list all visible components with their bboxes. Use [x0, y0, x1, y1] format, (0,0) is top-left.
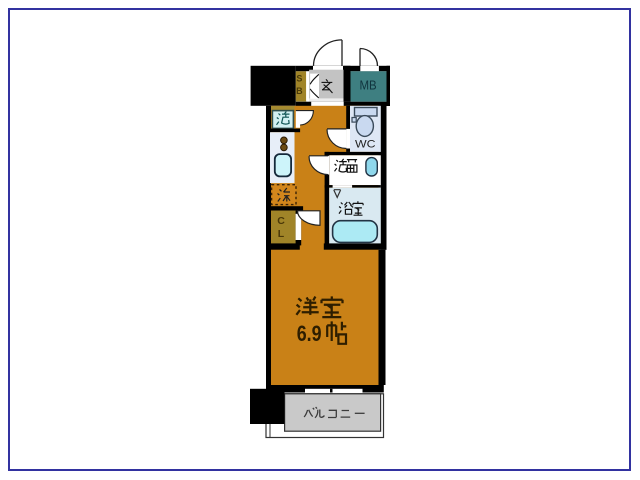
svg-text:6.9: 6.9: [297, 321, 322, 346]
svg-text:L: L: [278, 228, 285, 240]
svg-text:MB: MB: [360, 77, 377, 92]
svg-text:B: B: [296, 86, 303, 96]
svg-text:S: S: [296, 73, 302, 83]
svg-text:C: C: [277, 215, 285, 227]
svg-text:WC: WC: [355, 138, 376, 150]
